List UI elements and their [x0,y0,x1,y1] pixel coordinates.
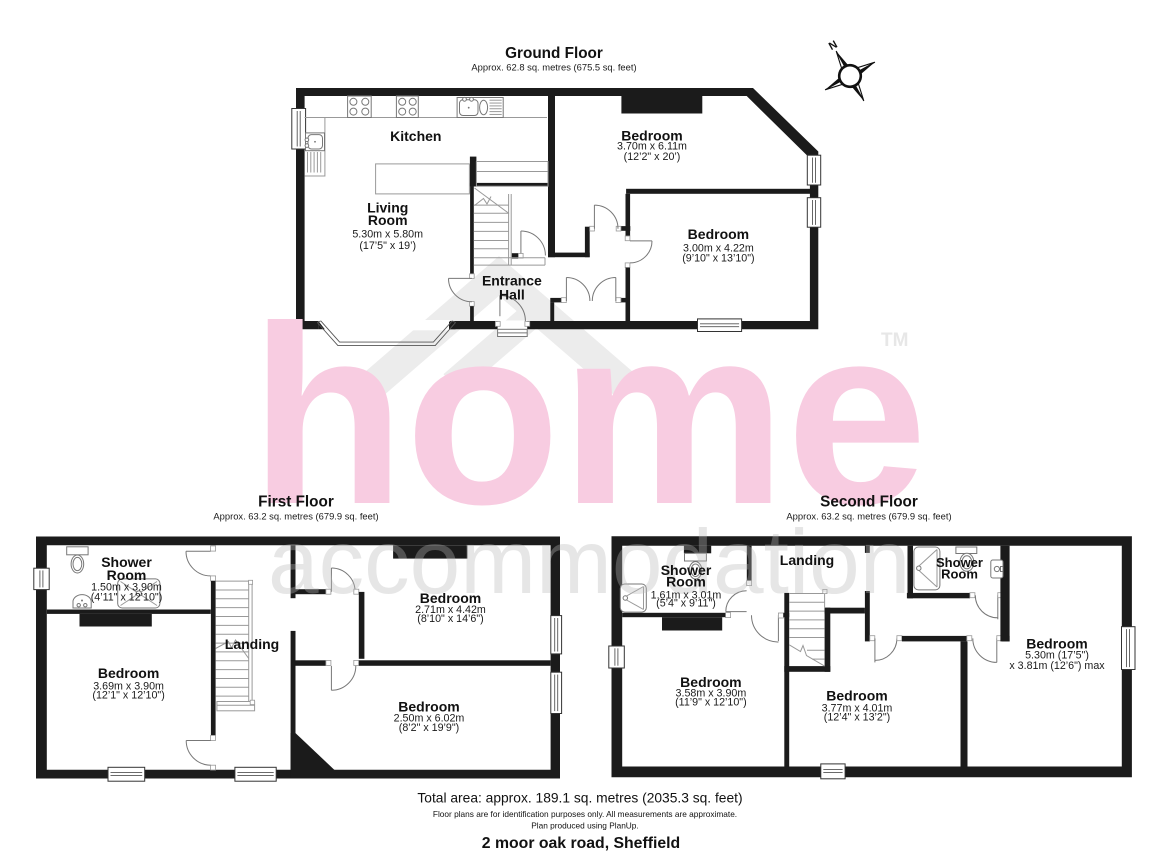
svg-text:(12’1" x 12’10"): (12’1" x 12’10") [92,690,164,702]
svg-text:Plan produced using PlanUp.: Plan produced using PlanUp. [531,821,638,831]
svg-text:Bedroom: Bedroom [98,665,159,681]
svg-text:(11’9" x 12’10"): (11’9" x 12’10") [675,697,747,709]
svg-text:(4’11" x 12’10"): (4’11" x 12’10") [91,592,163,604]
svg-text:Second Floor: Second Floor [820,493,918,510]
svg-text:(5’4" x 9’11"): (5’4" x 9’11") [656,597,716,609]
svg-text:Floor plans are for identifica: Floor plans are for identification purpo… [433,809,737,819]
svg-text:(12’4" x 13’2"): (12’4" x 13’2") [824,712,890,724]
svg-text:Bedroom: Bedroom [826,687,887,703]
svg-text:x 3.81m (12’6") max: x 3.81m (12’6") max [1009,660,1105,672]
svg-text:Room: Room [666,573,706,589]
svg-text:Total area: approx. 189.1 sq.: Total area: approx. 189.1 sq. metres (20… [417,791,742,806]
svg-text:(12’2" x 20’): (12’2" x 20’) [624,151,681,163]
svg-text:2 moor oak road, Sheffield: 2 moor oak road, Sheffield [482,835,680,851]
svg-text:Approx. 62.8 sq. metres (675.5: Approx. 62.8 sq. metres (675.5 sq. feet) [471,62,636,73]
svg-text:First Floor: First Floor [258,493,334,510]
svg-text:Landing: Landing [225,636,279,652]
svg-text:(8’2" x 19’9"): (8’2" x 19’9") [399,722,459,734]
svg-text:Approx. 63.2 sq. metres (679.9: Approx. 63.2 sq. metres (679.9 sq. feet) [786,511,951,522]
svg-text:Landing: Landing [780,552,834,568]
svg-text:5.30m x 5.80m: 5.30m x 5.80m [352,228,423,240]
svg-text:Kitchen: Kitchen [390,128,441,144]
svg-text:TM: TM [881,330,908,351]
svg-text:Hall: Hall [499,287,525,303]
svg-text:(9’10" x 13’10"): (9’10" x 13’10") [682,252,754,264]
svg-text:(8’10" x 14’6"): (8’10" x 14’6") [417,613,483,625]
svg-text:Room: Room [368,212,408,228]
svg-text:Approx. 63.2 sq. metres (679.9: Approx. 63.2 sq. metres (679.9 sq. feet) [213,511,378,522]
svg-text:Room: Room [941,566,978,581]
svg-text:(17’5" x 19’): (17’5" x 19’) [359,240,416,252]
svg-text:Ground Floor: Ground Floor [505,45,603,62]
svg-text:Bedroom: Bedroom [688,226,749,242]
